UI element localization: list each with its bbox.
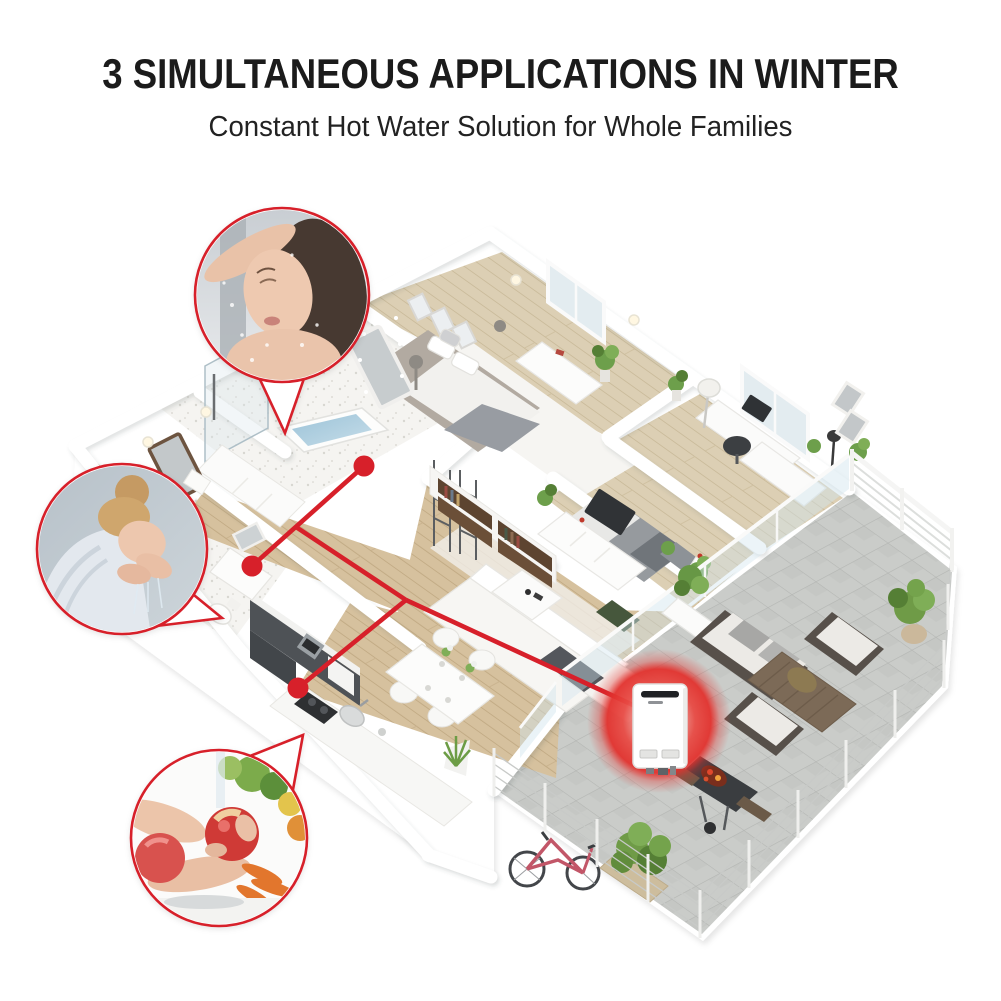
heater-logo (648, 701, 663, 704)
study-wall-art (833, 383, 868, 444)
bedside-lamp-icon (494, 320, 506, 332)
bathtub-dot (354, 456, 375, 477)
poster: 3 SIMULTANEOUS APPLICATIONS IN WINTER Co… (0, 0, 1001, 1001)
callout-fruit-washing (104, 716, 340, 957)
red-flower (580, 518, 585, 523)
bathroom-sink-dot (242, 556, 263, 577)
poster-subtitle: Constant Hot Water Solution for Whole Fa… (25, 112, 976, 142)
bedside-lamp-icon (409, 355, 423, 369)
woman-showering-photo (172, 195, 398, 439)
hands-washing-fruit-photo (104, 716, 340, 952)
water-heater (587, 649, 731, 793)
kitchen-sink-dot (288, 678, 309, 699)
water-stream (216, 750, 225, 808)
poster-title: 3 SIMULTANEOUS APPLICATIONS IN WINTER (65, 53, 936, 95)
office-chair (723, 436, 751, 456)
wall-sconce-icon (143, 437, 153, 447)
callout-shower (172, 195, 398, 444)
tankless-heater-unit (633, 684, 687, 775)
black-lamp-icon (832, 440, 834, 468)
woman-washing-face-photo (12, 462, 238, 648)
callout-face-washing (12, 462, 238, 653)
heater-vent (641, 691, 679, 698)
bbq-wheel-icon (704, 822, 716, 834)
